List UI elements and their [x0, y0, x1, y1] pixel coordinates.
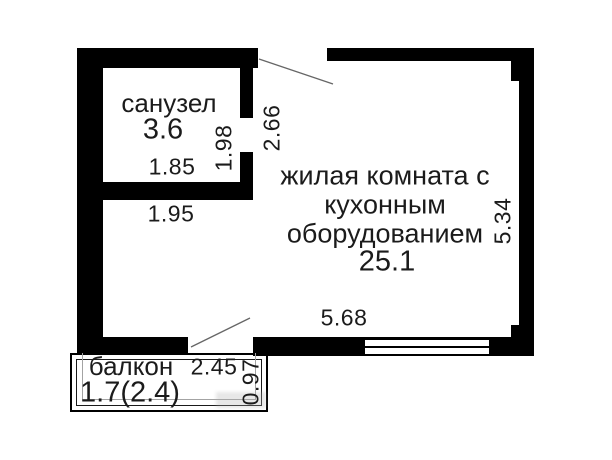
bathroom-name-label: санузел [121, 90, 216, 116]
living-room-name-line3: оборудованием [280, 220, 489, 249]
bathroom-width-dim: 1.85 [149, 156, 196, 179]
balcony-door-swing-line [191, 318, 250, 347]
entry-opening-dim: 2.66 [261, 105, 284, 152]
passage-width-dim: 1.95 [148, 203, 195, 226]
balcony-area-label: 1.7(2.4) [80, 379, 180, 408]
living-room-height-dim: 5.34 [492, 198, 515, 245]
living-room-name-label: жилая комната с кухонным оборудованием [280, 162, 489, 249]
living-room-area-label: 25.1 [359, 248, 415, 277]
balcony-opening-dim: 2.45 [191, 356, 238, 379]
bathroom-area-label: 3.6 [143, 116, 183, 145]
living-room-name-line2: кухонным [280, 191, 489, 220]
balcony-depth-dim: 0.97 [240, 359, 263, 406]
entrance-door-swing-line [259, 59, 333, 84]
bathroom-depth-dim: 1.98 [213, 125, 236, 172]
living-room-name-line1: жилая комната с [280, 162, 489, 191]
floor-plan: санузел 3.6 1.85 1.98 2.66 жилая комната… [0, 0, 612, 460]
balcony-name-label: балкон [89, 353, 173, 379]
living-room-width-dim: 5.68 [321, 307, 368, 330]
